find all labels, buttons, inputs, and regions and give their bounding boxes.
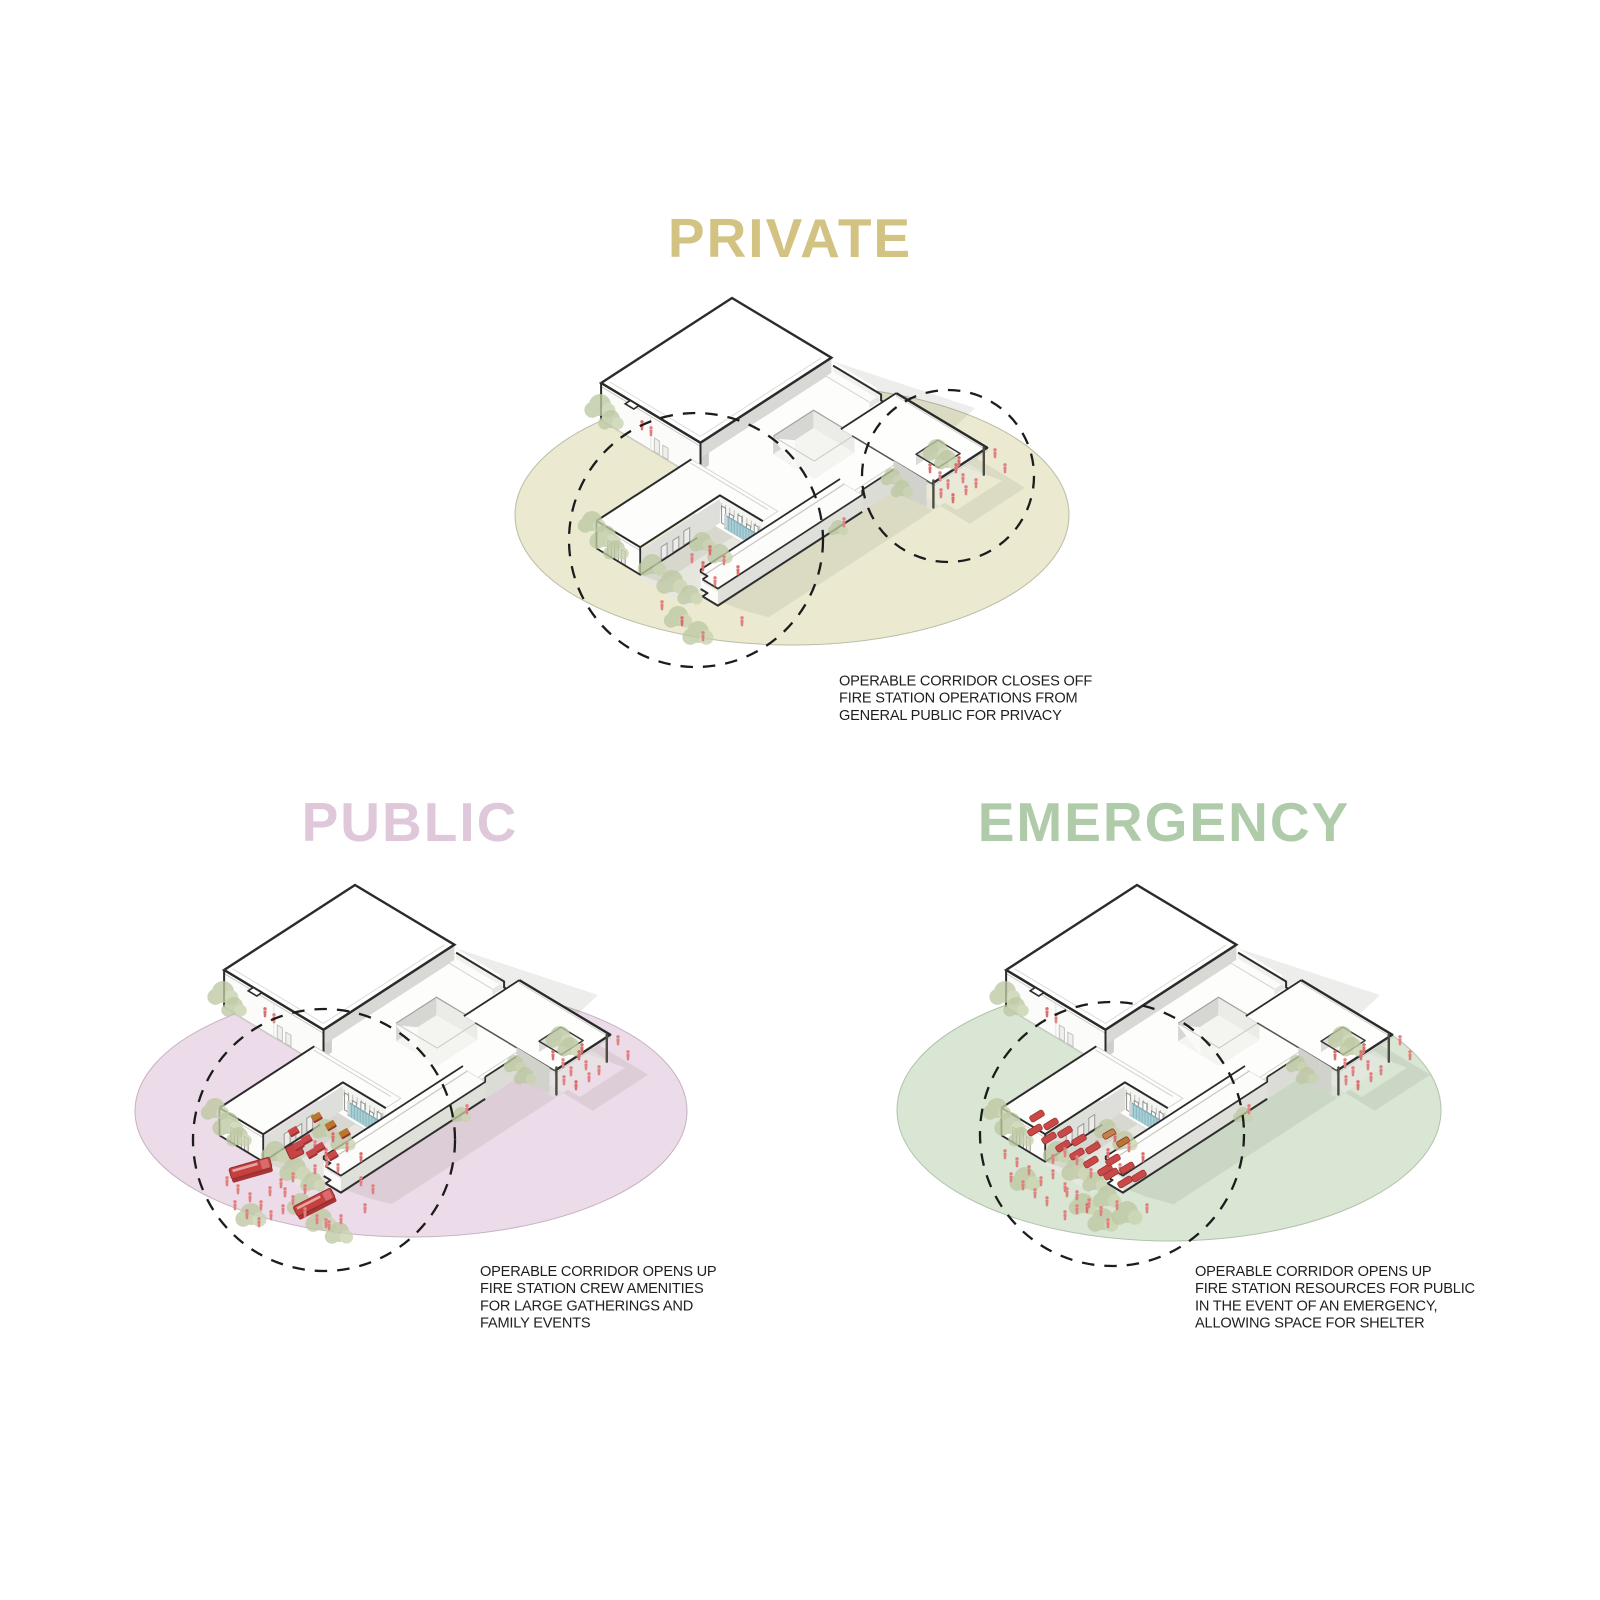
svg-text:FIRE STATION CREW AMENITIES: FIRE STATION CREW AMENITIES [480, 1281, 704, 1297]
svg-text:PRIVATE: PRIVATE [668, 207, 912, 269]
svg-text:PUBLIC: PUBLIC [302, 791, 519, 853]
svg-text:FIRE STATION RESOURCES FOR PUB: FIRE STATION RESOURCES FOR PUBLIC [1195, 1281, 1475, 1297]
svg-text:FIRE STATION OPERATIONS FROM: FIRE STATION OPERATIONS FROM [839, 691, 1077, 707]
svg-text:OPERABLE CORRIDOR OPENS UP: OPERABLE CORRIDOR OPENS UP [480, 1264, 716, 1280]
svg-text:FOR LARGE GATHERINGS AND: FOR LARGE GATHERINGS AND [480, 1298, 693, 1314]
svg-text:OPERABLE CORRIDOR OPENS UP: OPERABLE CORRIDOR OPENS UP [1195, 1264, 1431, 1280]
svg-text:IN THE EVENT OF AN EMERGENCY,: IN THE EVENT OF AN EMERGENCY, [1195, 1298, 1437, 1314]
svg-text:EMERGENCY: EMERGENCY [978, 791, 1351, 853]
svg-text:ALLOWING SPACE FOR SHELTER: ALLOWING SPACE FOR SHELTER [1195, 1316, 1424, 1332]
svg-text:FAMILY EVENTS: FAMILY EVENTS [480, 1316, 591, 1332]
svg-text:OPERABLE CORRIDOR CLOSES OFF: OPERABLE CORRIDOR CLOSES OFF [839, 674, 1092, 690]
svg-text:GENERAL PUBLIC FOR PRIVACY: GENERAL PUBLIC FOR PRIVACY [839, 708, 1062, 724]
